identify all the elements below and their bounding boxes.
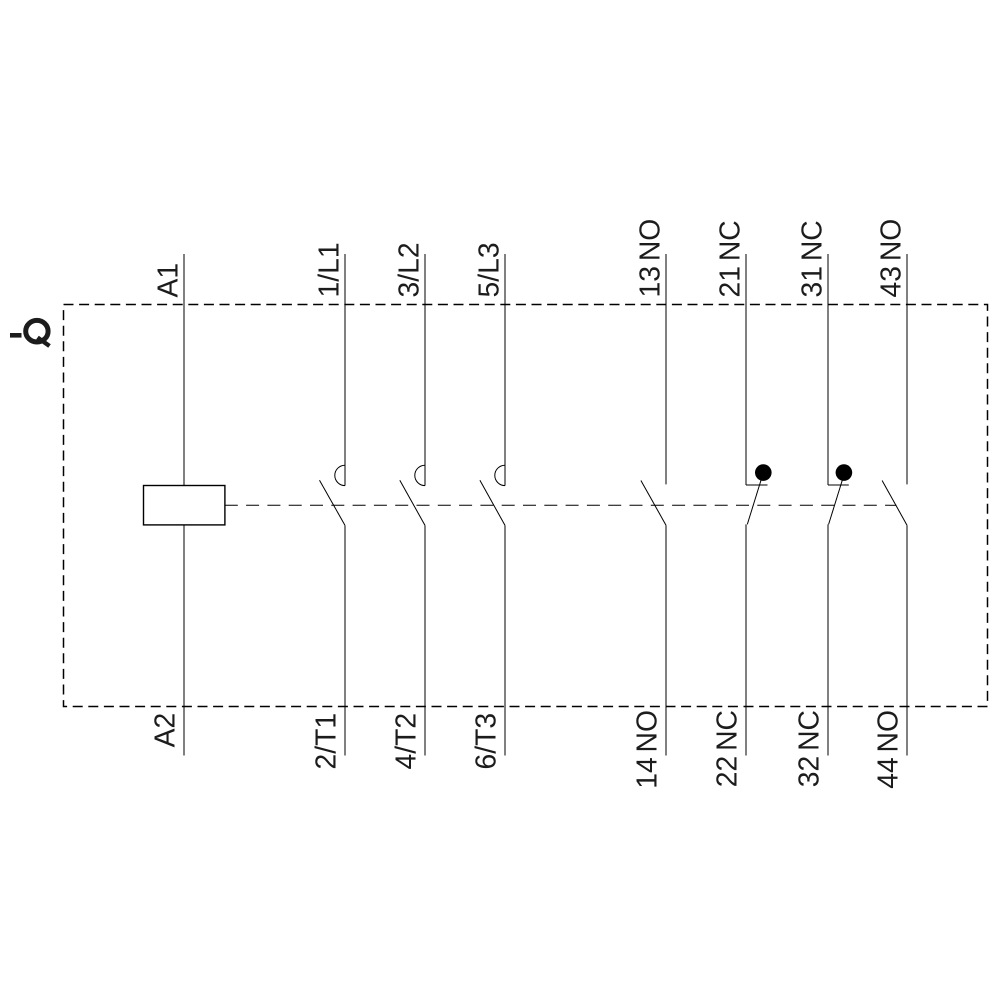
svg-text:A2: A2 [149,713,181,748]
svg-text:22 NC: 22 NC [711,710,743,787]
svg-text:1/L1: 1/L1 [313,242,345,297]
svg-text:6/T3: 6/T3 [470,713,502,770]
svg-text:5/L3: 5/L3 [473,242,505,297]
svg-text:A1: A1 [152,263,184,298]
svg-text:43 NO: 43 NO [875,219,907,298]
svg-text:2/T1: 2/T1 [310,713,342,770]
svg-text:13 NO: 13 NO [634,219,666,298]
svg-text:4/T2: 4/T2 [390,713,422,770]
svg-text:31 NC: 31 NC [796,220,828,297]
svg-text:32 NC: 32 NC [793,710,825,787]
svg-text:21 NC: 21 NC [714,220,746,297]
svg-text:14 NO: 14 NO [631,710,663,789]
svg-text:3/L2: 3/L2 [393,242,425,297]
svg-text:44 NO: 44 NO [872,710,904,789]
